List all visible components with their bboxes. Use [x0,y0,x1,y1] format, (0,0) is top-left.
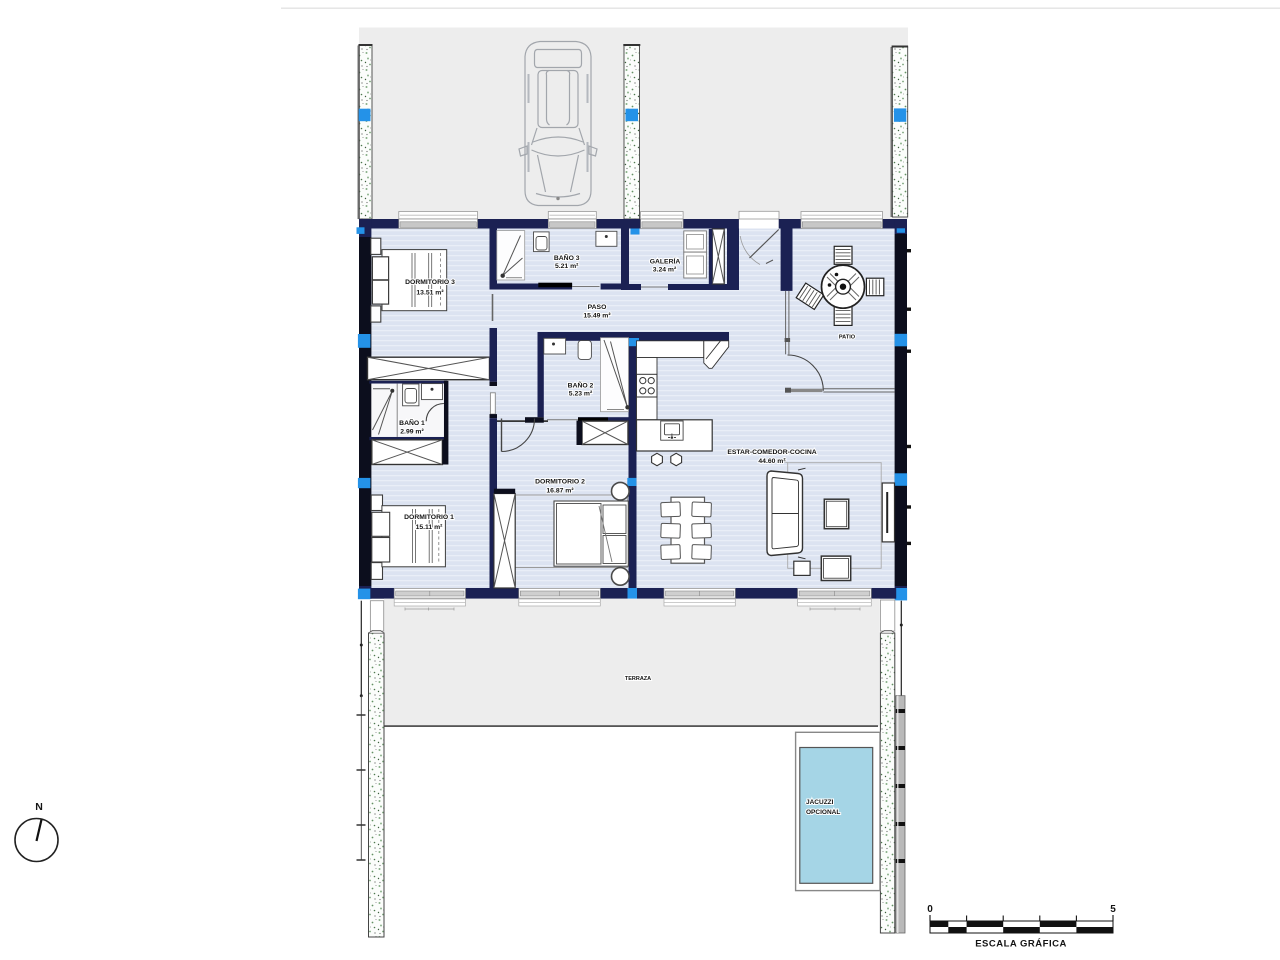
svg-text:3.24 m²: 3.24 m² [653,267,677,274]
svg-text:JACUZZI: JACUZZI [806,799,834,806]
svg-text:16.87 m²: 16.87 m² [546,488,574,495]
svg-text:44.60 m²: 44.60 m² [758,458,786,465]
svg-text:0: 0 [927,904,933,915]
svg-text:5.23 m²: 5.23 m² [569,391,593,398]
svg-text:N: N [35,801,43,813]
svg-text:ESTAR-COMEDOR-COCINA: ESTAR-COMEDOR-COCINA [727,449,816,456]
svg-text:BAÑO 1: BAÑO 1 [399,418,425,427]
svg-text:DORMITORIO 3: DORMITORIO 3 [405,279,455,286]
svg-text:GALERÍA: GALERÍA [650,257,681,266]
svg-text:DORMITORIO 1: DORMITORIO 1 [404,514,454,521]
svg-text:5.21 m²: 5.21 m² [555,263,579,270]
svg-text:15.11 m²: 15.11 m² [416,524,444,531]
svg-text:2.99 m²: 2.99 m² [400,429,424,436]
svg-text:PASO: PASO [588,304,607,311]
svg-text:13.51 m²: 13.51 m² [416,290,444,297]
svg-text:TERRAZA: TERRAZA [625,676,651,682]
svg-text:BAÑO 3: BAÑO 3 [554,253,580,262]
svg-text:15.49 m²: 15.49 m² [583,313,611,320]
svg-text:ESCALA GRÁFICA: ESCALA GRÁFICA [975,939,1067,950]
svg-text:BAÑO 2: BAÑO 2 [568,381,594,390]
svg-text:DORMITORIO 2: DORMITORIO 2 [535,479,585,486]
svg-text:OPCIONAL: OPCIONAL [806,809,840,816]
svg-text:5: 5 [1110,904,1116,915]
svg-text:PATIO: PATIO [839,335,856,341]
